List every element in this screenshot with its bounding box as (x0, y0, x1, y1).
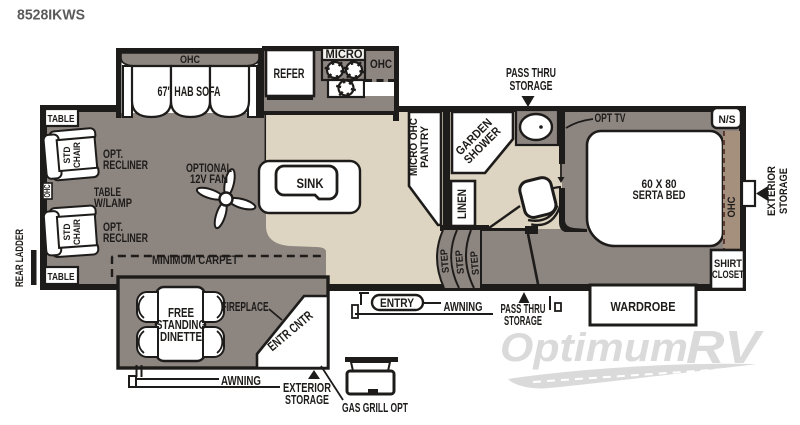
svg-text:OHC: OHC (43, 184, 52, 197)
svg-text:STORAGE: STORAGE (285, 393, 329, 407)
svg-text:WARDROBE: WARDROBE (611, 299, 676, 314)
svg-text:CLOSET: CLOSET (712, 269, 744, 281)
svg-text:8528IKWS: 8528IKWS (17, 8, 85, 24)
svg-text:DINETTE: DINETTE (160, 330, 202, 344)
svg-text:12V FAN: 12V FAN (190, 174, 228, 186)
svg-text:SINK: SINK (297, 176, 324, 191)
svg-text:REAR LADDER: REAR LADDER (14, 229, 26, 287)
svg-text:LINEN: LINEN (457, 189, 469, 219)
svg-text:Optimum: Optimum (500, 326, 688, 370)
svg-text:REFER: REFER (274, 66, 305, 81)
svg-text:GAS GRILL OPT: GAS GRILL OPT (342, 401, 408, 415)
svg-text:TABLE: TABLE (48, 272, 75, 283)
svg-text:OHC: OHC (726, 196, 738, 217)
svg-text:STEP: STEP (454, 249, 467, 274)
svg-text:MINIMUM CARPET: MINIMUM CARPET (152, 253, 239, 267)
svg-text:STEP: STEP (469, 250, 482, 275)
svg-text:OPT TV: OPT TV (595, 113, 626, 125)
svg-text:SERTA BED: SERTA BED (633, 190, 686, 202)
svg-text:MICRO: MICRO (326, 47, 363, 61)
svg-text:ENTRY: ENTRY (380, 296, 414, 310)
svg-text:OHC: OHC (370, 57, 392, 71)
svg-text:PANTRY: PANTRY (419, 125, 431, 168)
svg-text:AWNING: AWNING (444, 300, 483, 314)
svg-text:OHC: OHC (180, 54, 200, 66)
svg-text:CHAIR: CHAIR (72, 142, 83, 168)
svg-text:AWNING: AWNING (221, 373, 261, 388)
svg-text:STORAGE: STORAGE (504, 314, 542, 328)
svg-text:FIREPLACE: FIREPLACE (222, 300, 269, 314)
svg-text:W/LAMP: W/LAMP (94, 198, 132, 210)
svg-text:EXTERIOR: EXTERIOR (766, 166, 778, 216)
svg-text:67″ HAB SOFA: 67″ HAB SOFA (158, 84, 221, 99)
svg-text:RECLINER: RECLINER (103, 233, 149, 245)
svg-text:RECLINER: RECLINER (103, 160, 149, 172)
svg-text:STORAGE: STORAGE (510, 78, 553, 93)
svg-text:STORAGE: STORAGE (778, 168, 790, 214)
svg-text:N/S: N/S (719, 114, 736, 126)
svg-text:CHAIR: CHAIR (72, 219, 83, 245)
svg-text:STEP: STEP (439, 248, 452, 273)
svg-text:TABLE: TABLE (48, 114, 75, 125)
